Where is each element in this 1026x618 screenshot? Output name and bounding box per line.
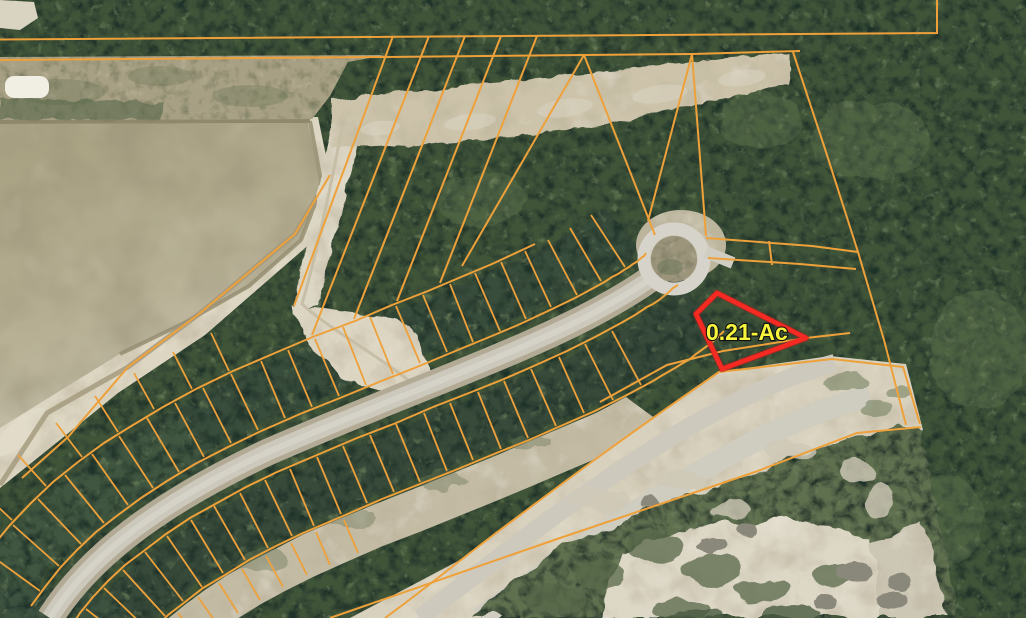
svg-text:0.21-Ac: 0.21-Ac <box>706 319 788 345</box>
